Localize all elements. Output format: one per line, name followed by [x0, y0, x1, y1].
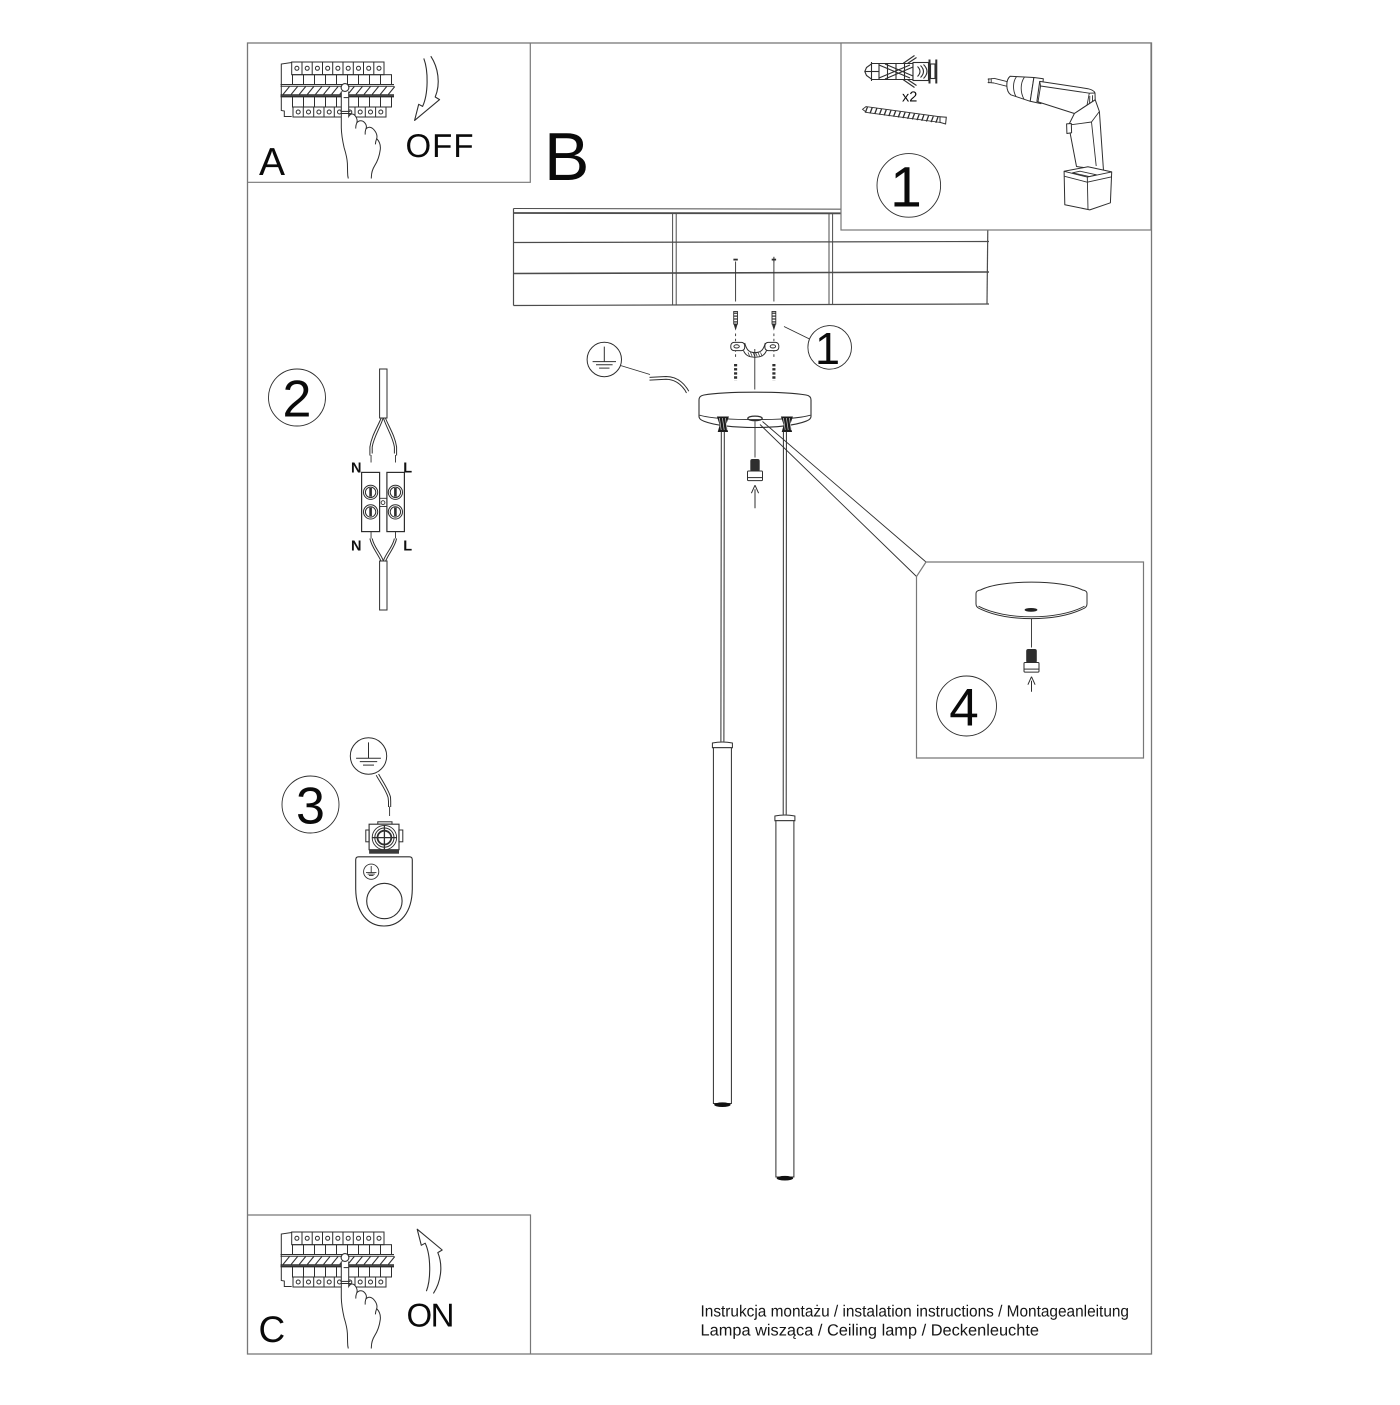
svg-text:Lampa wisząca / Ceiling lamp /: Lampa wisząca / Ceiling lamp / Deckenleu… — [701, 1321, 1040, 1339]
svg-text:B: B — [544, 119, 589, 195]
svg-text:ON: ON — [407, 1297, 455, 1334]
svg-text:N: N — [351, 538, 361, 554]
svg-text:L: L — [403, 461, 412, 477]
svg-text:3: 3 — [296, 778, 325, 836]
svg-text:N: N — [351, 461, 361, 477]
svg-text:1: 1 — [890, 156, 922, 220]
svg-text:Instrukcja montażu / instalati: Instrukcja montażu / instalation instruc… — [701, 1302, 1130, 1320]
svg-text:1: 1 — [815, 323, 840, 374]
svg-text:L: L — [403, 538, 412, 554]
svg-text:x2: x2 — [902, 90, 917, 106]
svg-text:4: 4 — [949, 679, 978, 738]
svg-text:A: A — [259, 141, 285, 184]
svg-text:C: C — [259, 1309, 286, 1350]
svg-text:OFF: OFF — [406, 127, 474, 164]
svg-text:2: 2 — [283, 371, 312, 429]
